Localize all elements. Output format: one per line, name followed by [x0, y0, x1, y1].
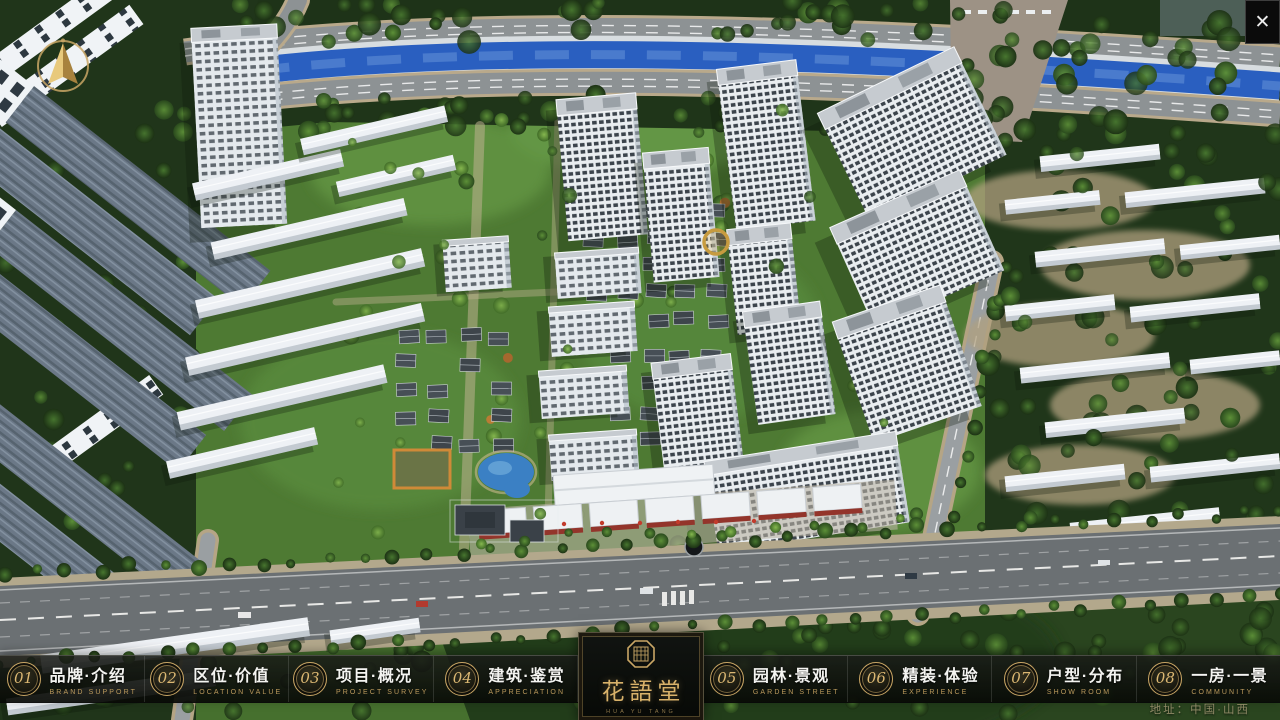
gold-landscape-ring	[704, 230, 728, 254]
compass-north-indicator	[34, 37, 92, 95]
nav-label-zh: 区位·价值	[193, 662, 270, 686]
logo[interactable]: 花語堂 HUA YU TANG	[578, 632, 704, 720]
compass-needle	[48, 43, 63, 84]
nav-label-zh: 园林·景观	[753, 662, 830, 686]
nav-badge-5: 05	[710, 662, 744, 696]
nav-item-garden[interactable]: 05 园林·景观 GARDEN STREET	[702, 656, 847, 702]
nav-item-view[interactable]: 08 一房·一景 COMMUNITY	[1136, 656, 1280, 702]
nav-label-en: GARDEN STREET	[753, 689, 840, 696]
nav-item-project[interactable]: 03 项目·概况 PROJECT SURVEY	[289, 656, 434, 702]
nav-badge-7: 07	[1004, 662, 1038, 696]
presentation-window: ✕ 01 品牌·介绍 BRAND SUPPORT 02 区位·价值 LOCATI…	[0, 0, 1280, 720]
nav-item-floorplan[interactable]: 07 户型·分布 SHOW ROOM	[991, 656, 1136, 702]
nav-item-interior[interactable]: 06 精装·体验 EXPERIENCE	[847, 656, 992, 702]
nav-item-brand[interactable]: 01 品牌·介绍 BRAND SUPPORT	[0, 656, 145, 702]
logo-name: 花語堂	[597, 672, 686, 706]
nav-label-zh: 精装·体验	[902, 662, 979, 686]
nav-label-zh: 建筑·鉴赏	[488, 662, 565, 686]
nav-badge-8: 08	[1148, 662, 1182, 696]
nav-label-zh: 户型·分布	[1047, 662, 1124, 686]
nav-label-en: APPRECIATION	[488, 689, 565, 696]
project-address: 地址：中国·山西	[1150, 701, 1250, 717]
nav-label-en: BRAND SUPPORT	[50, 689, 137, 696]
nav-label-en: PROJECT SURVEY	[336, 689, 429, 696]
close-button[interactable]: ✕	[1245, 0, 1280, 44]
nav-badge-3: 03	[293, 662, 327, 696]
site-aerial-render	[0, 0, 1280, 720]
nav-label-zh: 一房·一景	[1191, 662, 1268, 686]
seal-icon	[626, 639, 656, 669]
nav-label-zh: 品牌·介绍	[50, 662, 127, 686]
nav-label-en: EXPERIENCE	[902, 689, 968, 696]
nav-badge-2: 02	[150, 662, 184, 696]
nav-label-en: SHOW ROOM	[1047, 689, 1111, 696]
nav-label-en: COMMUNITY	[1191, 689, 1253, 696]
nav-badge-6: 06	[859, 662, 893, 696]
nav-item-architecture[interactable]: 04 建筑·鉴赏 APPRECIATION	[434, 656, 579, 702]
close-icon: ✕	[1255, 11, 1271, 34]
nav-label-zh: 项目·概况	[336, 662, 413, 686]
nav-label-en: LOCATION VALUE	[193, 689, 282, 696]
nav-badge-1: 01	[7, 662, 41, 696]
nav-item-location[interactable]: 02 区位·价值 LOCATION VALUE	[145, 656, 290, 702]
amenity-building	[394, 450, 450, 488]
logo-subtitle: HUA YU TANG	[606, 709, 676, 715]
nav-badge-4: 04	[445, 662, 479, 696]
